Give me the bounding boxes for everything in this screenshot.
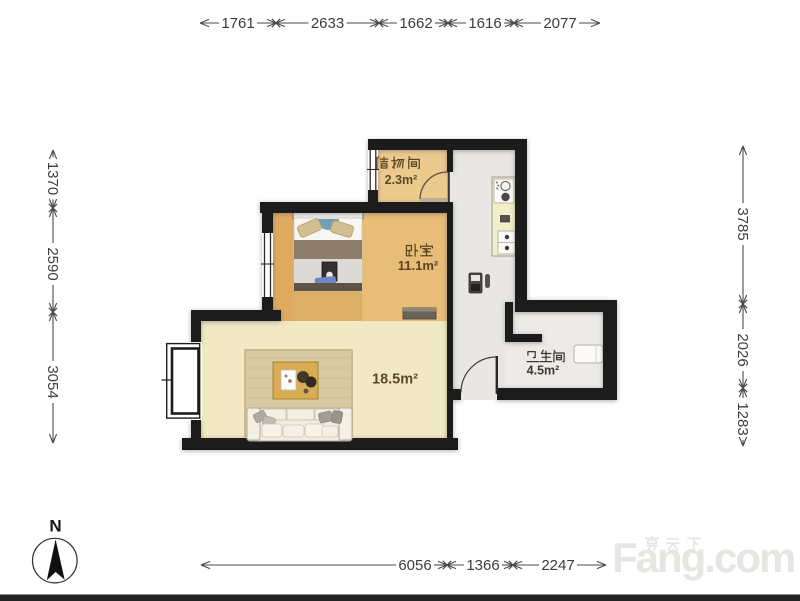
svg-text:N: N [49,517,61,536]
svg-text:2.3m²: 2.3m² [385,173,418,187]
svg-text:1366: 1366 [466,557,499,574]
svg-text:3054: 3054 [44,365,61,398]
svg-text:1370: 1370 [44,162,61,195]
svg-text:2590: 2590 [44,247,61,280]
svg-text:2247: 2247 [541,557,574,574]
svg-text:Fang.com: Fang.com [612,534,794,581]
svg-text:4.5m²: 4.5m² [527,364,560,378]
svg-text:11.1m²: 11.1m² [398,258,439,273]
svg-text:2077: 2077 [543,15,576,32]
svg-text:1761: 1761 [221,15,254,32]
svg-text:1616: 1616 [468,15,501,32]
svg-text:2026: 2026 [734,333,751,366]
svg-text:2633: 2633 [311,15,344,32]
svg-text:18.5m²: 18.5m² [372,372,418,388]
svg-text:1662: 1662 [399,15,432,32]
svg-text:6056: 6056 [398,557,431,574]
svg-text:3785: 3785 [734,207,751,240]
svg-text:1283: 1283 [734,402,751,435]
